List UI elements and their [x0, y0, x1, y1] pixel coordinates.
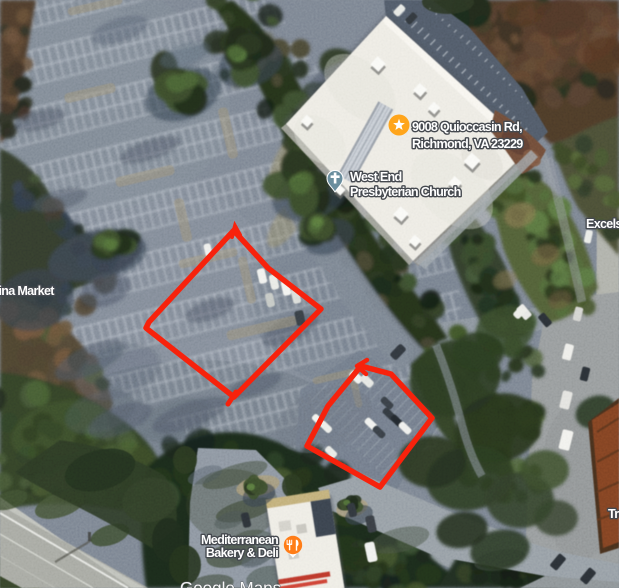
svg-text:Richmond, VA 23229: Richmond, VA 23229: [412, 137, 523, 151]
svg-text:tina Market: tina Market: [0, 284, 55, 298]
svg-text:Mediterranean: Mediterranean: [201, 533, 278, 547]
svg-text:West End: West End: [350, 170, 402, 184]
svg-text:Excelsior: Excelsior: [586, 217, 619, 231]
svg-text:Bakery & Deli: Bakery & Deli: [206, 546, 278, 560]
svg-text:9008 Quioccasin Rd,: 9008 Quioccasin Rd,: [412, 120, 522, 134]
svg-text:Tre: Tre: [608, 507, 619, 521]
svg-text:Presbyterian Church: Presbyterian Church: [350, 185, 461, 199]
svg-text:Google Maps: Google Maps: [180, 579, 281, 588]
